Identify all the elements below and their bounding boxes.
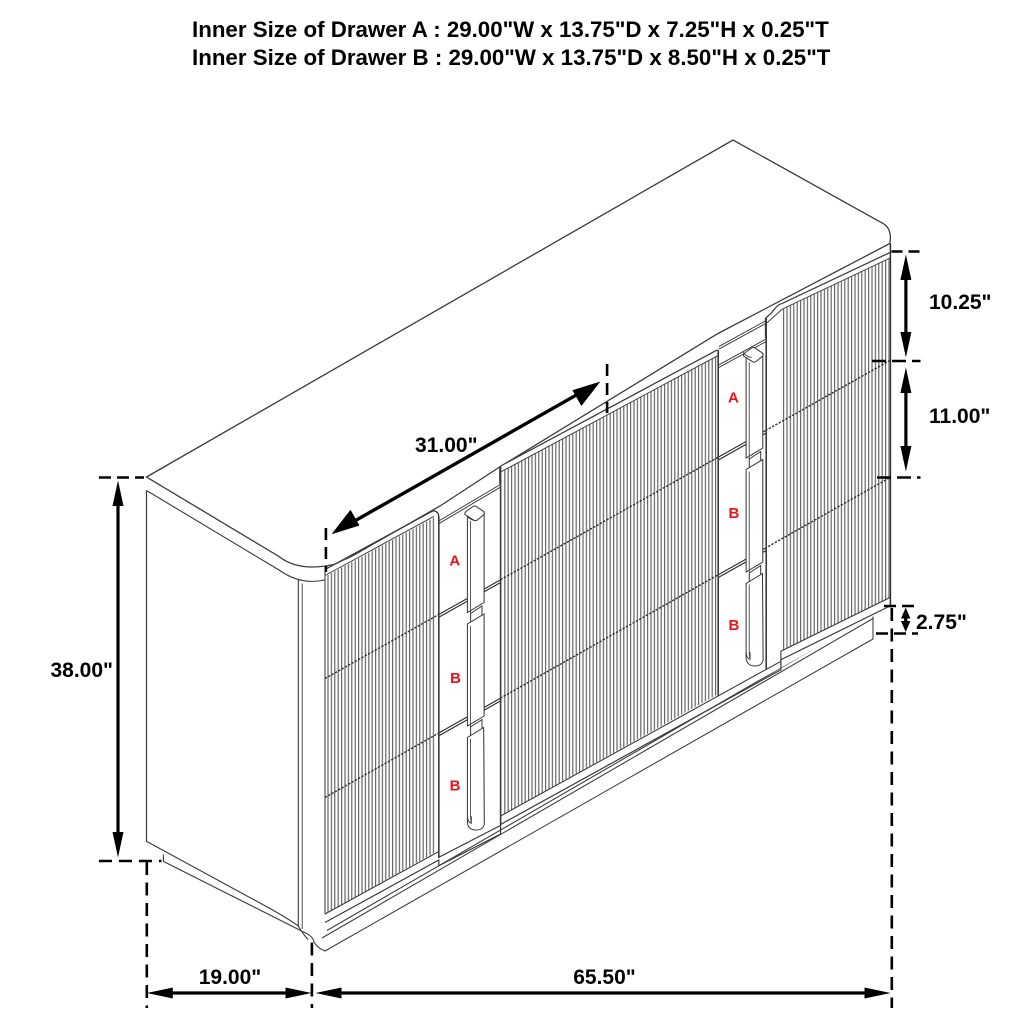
svg-text:31.00": 31.00" [415,434,478,457]
svg-text:B: B [728,505,739,522]
svg-text:38.00": 38.00" [50,659,113,682]
svg-text:B: B [450,670,461,687]
svg-text:10.25": 10.25" [929,291,992,314]
svg-text:Inner Size of Drawer A : 29.00: Inner Size of Drawer A : 29.00"W x 13.75… [192,17,829,42]
svg-text:B: B [728,617,739,634]
svg-text:65.50": 65.50" [573,966,636,989]
svg-text:19.00": 19.00" [199,966,262,989]
svg-text:2.75": 2.75" [916,611,967,634]
svg-text:11.00": 11.00" [929,405,990,428]
svg-text:Inner Size of Drawer B : 29.00: Inner Size of Drawer B : 29.00"W x 13.75… [192,45,831,70]
svg-text:A: A [449,552,460,569]
svg-text:A: A [728,389,739,406]
svg-text:B: B [450,777,461,794]
